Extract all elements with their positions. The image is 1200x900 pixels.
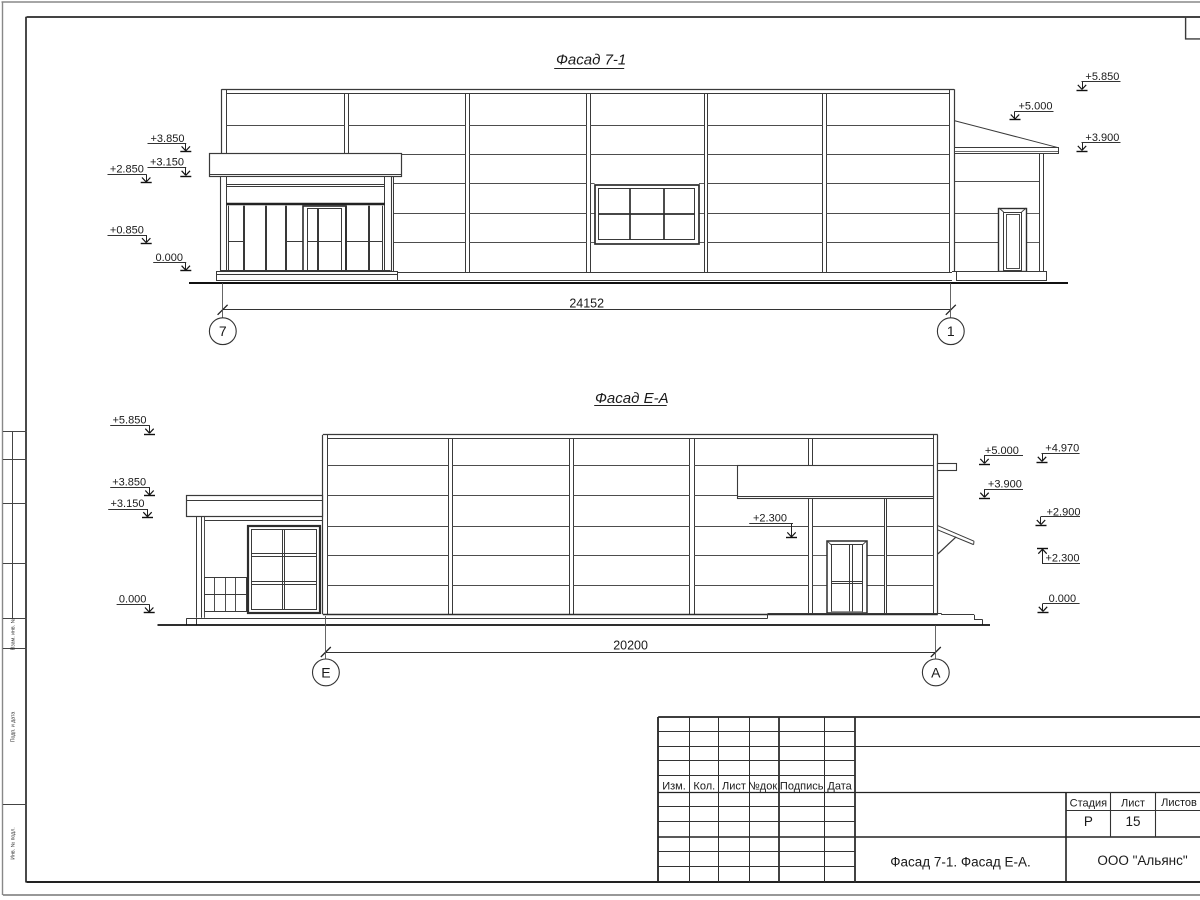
svg-text:7: 7 <box>219 323 227 339</box>
svg-text:+3.850: +3.850 <box>112 476 146 488</box>
svg-text:Е: Е <box>321 664 330 680</box>
svg-text:А: А <box>931 664 941 680</box>
svg-text:+3.900: +3.900 <box>988 479 1022 491</box>
svg-text:15: 15 <box>1125 814 1140 829</box>
svg-text:+2.850: +2.850 <box>110 164 144 176</box>
svg-text:+5.850: +5.850 <box>113 415 147 427</box>
svg-text:Взам. инв. №: Взам. инв. № <box>11 617 17 650</box>
svg-text:Листов: Листов <box>1161 797 1197 809</box>
svg-text:Фасад Е-А: Фасад Е-А <box>595 390 669 407</box>
svg-text:0.000: 0.000 <box>119 593 147 605</box>
svg-text:24152: 24152 <box>569 297 604 311</box>
svg-text:20200: 20200 <box>613 639 648 653</box>
svg-text:+2.300: +2.300 <box>1046 553 1080 565</box>
svg-text:Подпись: Подпись <box>780 780 824 792</box>
svg-text:+2.300: +2.300 <box>753 513 787 525</box>
svg-text:ООО "Альянс": ООО "Альянс" <box>1097 853 1187 868</box>
svg-text:Р: Р <box>1084 814 1093 829</box>
svg-text:Стадия: Стадия <box>1070 797 1108 809</box>
svg-text:+5.000: +5.000 <box>1019 101 1053 113</box>
svg-text:Изм.: Изм. <box>662 780 686 792</box>
svg-text:+0.850: +0.850 <box>110 224 144 236</box>
svg-text:Дата: Дата <box>827 780 852 792</box>
svg-text:Лист: Лист <box>1121 797 1145 809</box>
svg-text:+3.150: +3.150 <box>150 156 184 168</box>
svg-text:№док.: №док. <box>748 780 780 792</box>
svg-text:+4.970: +4.970 <box>1045 443 1079 455</box>
svg-text:Подп. и дата: Подп. и дата <box>11 712 17 743</box>
svg-text:+3.150: +3.150 <box>111 498 145 510</box>
svg-text:Кол.: Кол. <box>693 780 715 792</box>
svg-text:1: 1 <box>947 323 955 339</box>
svg-text:Лист: Лист <box>722 780 746 792</box>
svg-text:Фасад 7-1. Фасад Е-А.: Фасад 7-1. Фасад Е-А. <box>890 854 1031 869</box>
svg-text:Инв. № подл.: Инв. № подл. <box>11 827 17 859</box>
svg-text:Фасад 7-1: Фасад 7-1 <box>556 52 626 69</box>
